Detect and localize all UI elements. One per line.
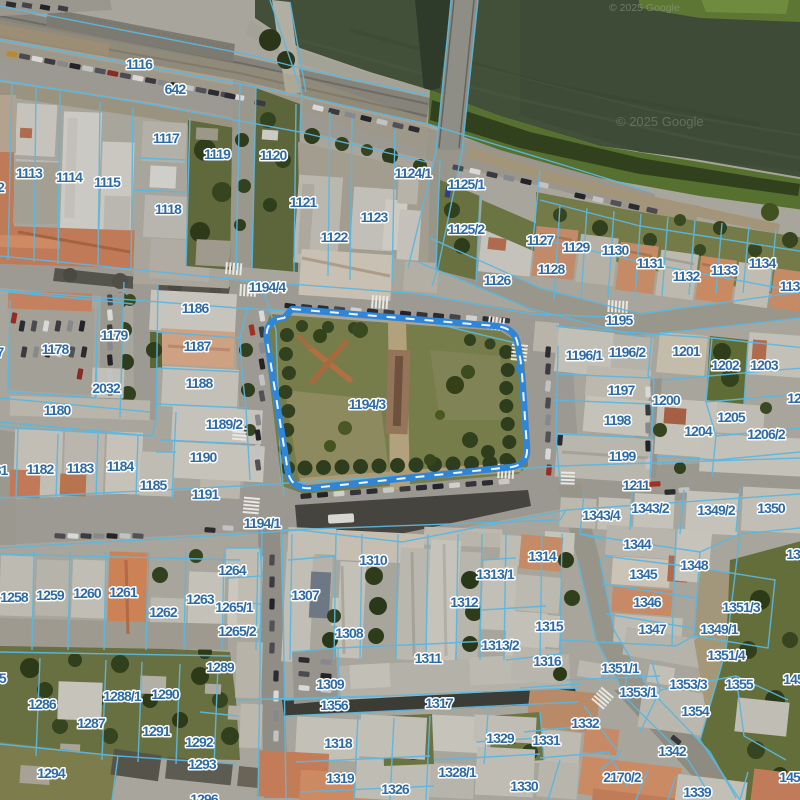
svg-text:1116: 1116 [126,56,153,72]
svg-text:1308: 1308 [335,625,364,641]
svg-text:1328/1: 1328/1 [438,764,477,780]
svg-text:1310: 1310 [359,552,388,568]
svg-text:1211: 1211 [623,477,651,493]
svg-text:1125/2: 1125/2 [448,221,486,237]
svg-text:1113: 1113 [16,165,43,181]
svg-text:1293: 1293 [188,756,217,772]
svg-text:1125/1: 1125/1 [448,176,486,192]
svg-text:1294: 1294 [37,765,66,781]
svg-text:2032: 2032 [92,380,121,396]
svg-text:1127: 1127 [527,232,555,248]
svg-text:1181: 1181 [0,462,8,478]
svg-text:© 2025 Google: © 2025 Google [609,2,680,14]
svg-text:1349/1: 1349/1 [700,621,739,637]
svg-text:1184: 1184 [107,458,135,474]
svg-text:1134: 1134 [749,255,777,271]
svg-text:1316: 1316 [533,653,562,669]
svg-text:1296: 1296 [190,791,219,800]
svg-text:1182: 1182 [27,461,55,477]
svg-text:1207: 1207 [787,390,800,406]
svg-text:1353/3: 1353/3 [669,676,708,692]
svg-text:1259: 1259 [36,587,65,603]
svg-text:1123: 1123 [361,209,389,225]
svg-text:1309: 1309 [316,676,345,692]
svg-text:1290: 1290 [151,686,180,702]
svg-text:1200: 1200 [652,392,681,408]
svg-text:1350: 1350 [757,500,786,516]
svg-text:1311: 1311 [415,650,443,666]
svg-text:1204: 1204 [684,423,713,439]
svg-text:1194/1: 1194/1 [244,515,282,531]
svg-text:1456: 1456 [783,671,800,687]
svg-text:1185: 1185 [140,477,168,493]
svg-text:1349/2: 1349/2 [697,502,736,518]
svg-text:1292: 1292 [185,734,214,750]
svg-text:1331: 1331 [532,732,561,748]
svg-text:1319: 1319 [326,770,355,786]
svg-text:1312: 1312 [450,594,479,610]
svg-text:1201: 1201 [672,343,701,359]
svg-text:1307: 1307 [291,587,320,603]
svg-text:1197: 1197 [608,382,636,398]
svg-text:1315: 1315 [535,618,564,634]
svg-text:1351/4: 1351/4 [707,647,746,663]
svg-text:1351/3: 1351/3 [722,599,761,615]
svg-text:1347: 1347 [638,621,667,637]
svg-text:1186: 1186 [182,300,210,316]
svg-text:1313/1: 1313/1 [476,566,515,582]
svg-text:1191: 1191 [192,486,220,502]
svg-text:1289: 1289 [206,659,235,675]
svg-text:1199: 1199 [609,448,637,464]
svg-text:1265/2: 1265/2 [218,623,257,639]
svg-text:1180: 1180 [44,402,72,418]
svg-text:1330: 1330 [510,778,539,794]
svg-text:1188: 1188 [186,375,214,391]
svg-text:1187: 1187 [184,338,212,354]
svg-text:1202: 1202 [711,357,740,373]
svg-text:1339: 1339 [683,784,712,800]
svg-text:1258: 1258 [0,589,29,605]
svg-text:1120: 1120 [260,147,288,163]
svg-text:1286: 1286 [28,696,57,712]
svg-text:1343/4: 1343/4 [582,507,621,523]
svg-text:1332: 1332 [571,715,600,731]
svg-text:1355: 1355 [725,676,754,692]
svg-text:1205: 1205 [717,409,746,425]
svg-text:1351/1: 1351/1 [601,660,640,676]
svg-text:1265/1: 1265/1 [215,599,254,615]
svg-text:1122: 1122 [321,229,349,245]
svg-text:2170/2: 2170/2 [603,769,642,785]
svg-text:1115: 1115 [94,174,121,190]
svg-text:1348: 1348 [680,557,709,573]
svg-text:1345: 1345 [629,566,658,582]
svg-text:1131: 1131 [637,255,665,271]
svg-text:1291: 1291 [142,723,171,739]
svg-text:1354: 1354 [681,703,710,719]
svg-text:1206/2: 1206/2 [747,426,786,442]
svg-text:1313/2: 1313/2 [481,637,520,653]
svg-text:1124/1: 1124/1 [395,165,433,181]
svg-text:1117: 1117 [153,130,180,146]
svg-text:1317: 1317 [425,695,454,711]
svg-text:1128: 1128 [538,261,566,277]
svg-text:1190: 1190 [190,449,218,465]
svg-text:1135: 1135 [780,278,800,294]
svg-text:1196/1: 1196/1 [566,347,604,363]
svg-text:1343/2: 1343/2 [631,500,670,516]
svg-text:1326: 1326 [381,781,410,797]
svg-text:1194/3: 1194/3 [349,396,387,412]
svg-text:1356: 1356 [320,697,349,713]
svg-text:© 2025 Google: © 2025 Google [616,114,704,129]
svg-text:1288/1: 1288/1 [103,688,142,704]
svg-text:1261: 1261 [109,584,138,600]
svg-text:1346: 1346 [633,594,662,610]
svg-text:1329: 1329 [486,730,515,746]
svg-text:1196/2: 1196/2 [609,344,647,360]
svg-text:1133: 1133 [711,262,739,278]
svg-text:1126: 1126 [484,272,512,288]
svg-text:1353/1: 1353/1 [619,684,658,700]
svg-text:1178: 1178 [42,341,70,357]
svg-text:1342: 1342 [658,743,687,759]
svg-text:1114: 1114 [56,169,83,185]
svg-text:1203: 1203 [750,357,779,373]
svg-text:1130: 1130 [602,242,630,258]
svg-text:1264: 1264 [218,562,247,578]
svg-text:1194/4: 1194/4 [249,279,287,295]
svg-text:1118: 1118 [155,201,182,217]
svg-text:1263: 1263 [186,591,215,607]
svg-text:1132: 1132 [673,268,701,284]
svg-text:1121: 1121 [290,194,318,210]
svg-text:1287: 1287 [77,715,106,731]
svg-text:1179: 1179 [101,327,129,343]
svg-text:1457: 1457 [779,769,800,785]
svg-text:1195: 1195 [606,312,634,328]
svg-text:642: 642 [165,81,187,97]
svg-text:1344: 1344 [623,536,652,552]
svg-text:1129: 1129 [563,239,591,255]
svg-text:1357: 1357 [786,546,800,562]
svg-text:1262: 1262 [149,604,178,620]
svg-text:1260: 1260 [73,585,102,601]
svg-text:1119: 1119 [204,146,231,162]
svg-text:1314: 1314 [528,548,557,564]
svg-text:1183: 1183 [67,460,95,476]
svg-text:1189/2: 1189/2 [206,416,244,432]
svg-text:1198: 1198 [604,412,632,428]
svg-text:1318: 1318 [324,735,353,751]
